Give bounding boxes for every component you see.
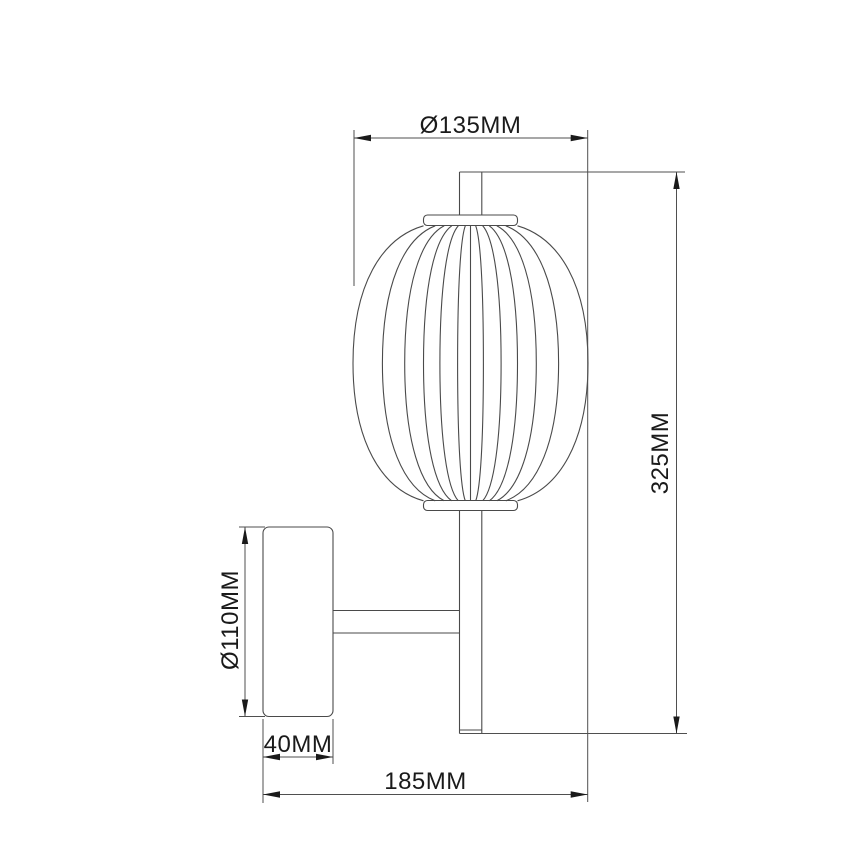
shade-rib	[476, 226, 484, 501]
label-overall-height: 325MM	[647, 412, 674, 495]
shade-bottom-cap	[424, 501, 518, 511]
shade-rib	[405, 226, 445, 501]
wall-lamp-dimension-drawing: Ø135MM 325MM Ø110MM 40MM 185MM	[0, 0, 868, 868]
technical-drawing-canvas: Ø135MM 325MM Ø110MM 40MM 185MM	[0, 0, 868, 868]
label-backplate-diameter: Ø110MM	[217, 570, 244, 670]
arrowhead-left	[354, 135, 371, 141]
label-backplate-depth: 40MM	[264, 731, 333, 758]
arrowhead-left	[263, 791, 280, 797]
shade-top-cap	[424, 215, 518, 226]
dimension-arrowheads	[242, 135, 680, 798]
shade-outline-left	[353, 226, 424, 501]
shade-rib	[489, 226, 517, 501]
arrowhead-right	[571, 135, 588, 141]
shade-rib	[382, 226, 435, 501]
label-overall-projection: 185MM	[384, 768, 467, 795]
label-shade-diameter: Ø135MM	[420, 112, 522, 139]
shade-rib	[440, 226, 458, 501]
wall-backplate	[263, 527, 333, 717]
arrowhead-up	[673, 172, 679, 189]
shade-rib	[483, 226, 501, 501]
arrowhead-down	[673, 717, 679, 734]
lamp-geometry	[263, 172, 588, 734]
arrowhead-up	[242, 527, 248, 544]
shade-rib	[458, 226, 466, 501]
shade-rib	[424, 226, 452, 501]
arrowhead-down	[242, 700, 248, 717]
shade-outline-right	[518, 226, 589, 501]
shade-rib	[497, 226, 537, 501]
dimension-lines	[239, 130, 687, 803]
shade-rib	[506, 226, 559, 501]
arrowhead-right	[571, 791, 588, 797]
